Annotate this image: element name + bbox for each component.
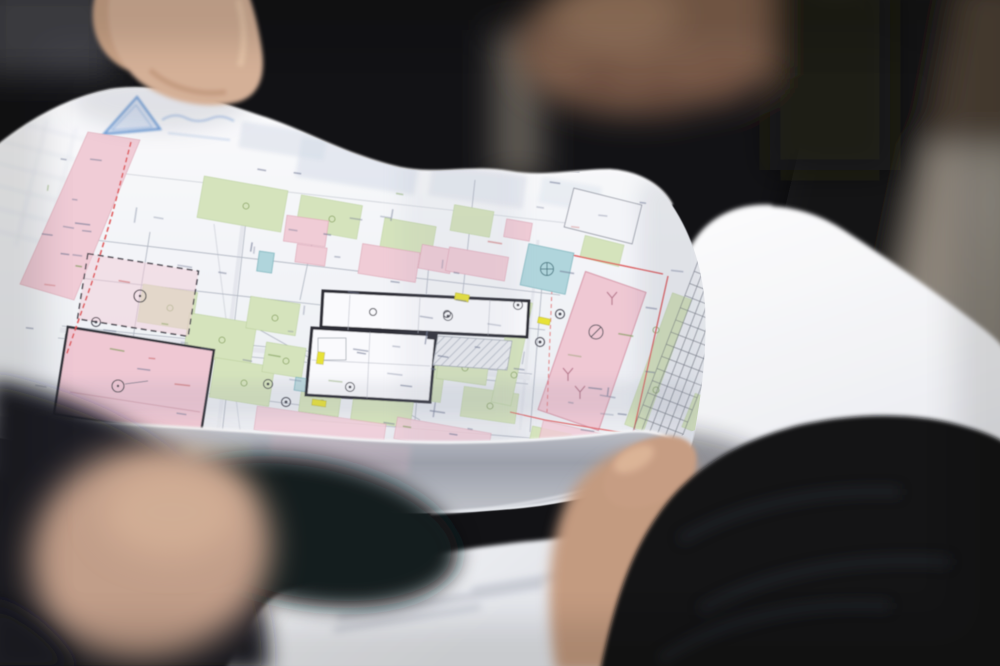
photo-tone-overlay — [0, 0, 1000, 666]
photo-canvas — [0, 0, 1000, 666]
photo-hands-holding-site-plan — [0, 0, 1000, 666]
